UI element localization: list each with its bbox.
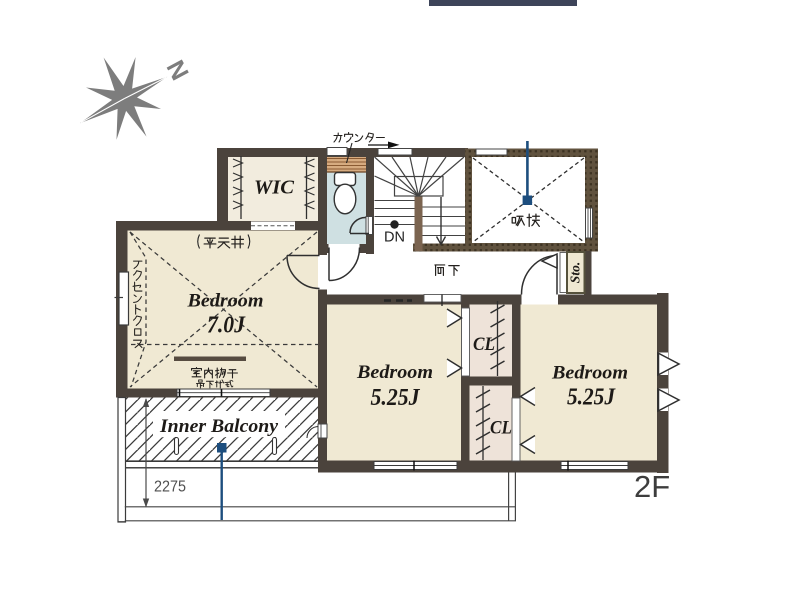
svg-text:5.25J: 5.25J <box>371 385 421 411</box>
svg-text:Bedroom: Bedroom <box>551 363 628 384</box>
svg-text:7.0J: 7.0J <box>207 313 246 339</box>
svg-text:CL: CL <box>473 334 495 355</box>
svg-text:2F: 2F <box>634 469 670 504</box>
svg-text:Bedroom: Bedroom <box>356 362 433 383</box>
svg-text:DN: DN <box>384 229 405 246</box>
svg-text:2275: 2275 <box>154 479 186 496</box>
svg-text:Sto.: Sto. <box>568 262 583 283</box>
svg-text:Bedroom: Bedroom <box>186 291 263 312</box>
svg-text:5.25J: 5.25J <box>567 385 616 411</box>
svg-text:WIC: WIC <box>254 177 295 199</box>
svg-text:CL: CL <box>490 418 512 439</box>
svg-text:Inner Balcony: Inner Balcony <box>159 416 279 437</box>
